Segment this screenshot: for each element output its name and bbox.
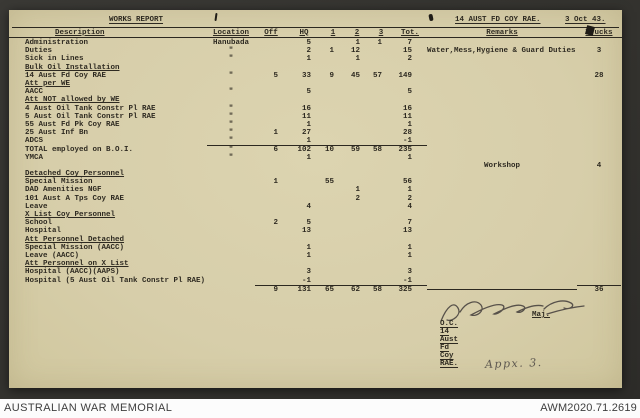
column-header-2: 2 bbox=[345, 29, 369, 37]
cell-desc: Leave bbox=[25, 203, 207, 211]
cell-desc: AACC bbox=[25, 88, 207, 96]
cell-tot: 2 bbox=[393, 55, 427, 63]
cell-tot: 1 bbox=[393, 121, 427, 129]
table-row: Hospital (5 Aust Oil Tank Constr Pl RAE)… bbox=[9, 276, 622, 284]
cell-c3: 1 bbox=[369, 39, 393, 47]
cell-tot: 4 bbox=[393, 203, 427, 211]
column-header-3: 3 bbox=[369, 29, 393, 37]
cell-loc: " bbox=[207, 129, 255, 137]
document-page: WORKS REPORT 14 AUST FD COY RAE. 3 Oct 4… bbox=[9, 10, 622, 388]
cell-c1: 9 bbox=[321, 72, 345, 80]
table-row: Att Personnel Detached bbox=[9, 236, 622, 244]
table-row: YMCA"11 bbox=[9, 154, 622, 162]
cell-rem: Water,Mess,Hygiene & Guard Duties bbox=[427, 47, 577, 55]
column-header-tot: Tot. bbox=[393, 29, 427, 37]
column-header-description: Description bbox=[25, 29, 207, 37]
cell-hq: 131 bbox=[287, 285, 321, 294]
cell-off: 1 bbox=[255, 178, 287, 186]
cell-tot: 1 bbox=[393, 154, 427, 162]
table-row: Special Mission (AACC)11 bbox=[9, 244, 622, 252]
cell-desc: 4 Aust Oil Tank Constr Pl RAE bbox=[25, 105, 207, 113]
cell-tr: 3 bbox=[577, 47, 621, 55]
cell-loc: " bbox=[207, 113, 255, 121]
cell-hq: -1 bbox=[287, 277, 321, 285]
handwritten-signature bbox=[437, 294, 587, 324]
handwritten-appendix-note: Appx. 3. bbox=[485, 359, 543, 369]
cell-tot: 1 bbox=[393, 252, 427, 260]
cell-tot: 15 bbox=[393, 47, 427, 55]
cell-c3: 58 bbox=[369, 145, 393, 154]
column-header-off: Off bbox=[255, 29, 287, 37]
archive-name: AUSTRALIAN WAR MEMORIAL bbox=[4, 402, 172, 414]
cell-loc: " bbox=[207, 88, 255, 96]
cell-desc: YMCA bbox=[25, 154, 207, 162]
cell-tot: 325 bbox=[393, 285, 427, 294]
signature-role: O.C. 14 Aust Fd Coy RAE. bbox=[440, 320, 458, 368]
table-row: 14 Aust Fd Coy RAE"5339455714928 bbox=[9, 72, 622, 80]
column-header-remarks: Remarks bbox=[427, 29, 577, 37]
cell-off: 6 bbox=[255, 145, 287, 154]
cell-c2: 12 bbox=[345, 47, 369, 55]
table-row: Att per WE bbox=[9, 80, 622, 88]
report-title-row: WORKS REPORT 14 AUST FD COY RAE. 3 Oct 4… bbox=[9, 16, 622, 26]
cell-hq: 1 bbox=[287, 154, 321, 162]
report-unit: 14 AUST FD COY RAE. bbox=[455, 16, 541, 24]
table-row: 25 Aust Inf Bn"12728 bbox=[9, 129, 622, 137]
cell-rem bbox=[427, 289, 577, 290]
table-row: 4 Aust Oil Tank Constr Pl RAE"1616 bbox=[9, 105, 622, 113]
cell-loc: " bbox=[207, 72, 255, 80]
cell-tot: 149 bbox=[393, 72, 427, 80]
cell-hq: 3 bbox=[287, 268, 321, 276]
cell-hq: 13 bbox=[287, 227, 321, 235]
cell-c1: 10 bbox=[321, 145, 345, 154]
table-row: Att NOT allowed by WE bbox=[9, 96, 622, 104]
cell-loc: " bbox=[207, 137, 255, 145]
cell-c2: 45 bbox=[345, 72, 369, 80]
cell-desc: Leave (AACC) bbox=[25, 252, 207, 260]
cell-desc: X List Coy Personnel bbox=[25, 211, 207, 219]
table-row: Duties"211215Water,Mess,Hygiene & Guard … bbox=[9, 47, 622, 55]
table-row: 913165625832536 bbox=[9, 285, 622, 293]
cell-loc: " bbox=[207, 121, 255, 129]
cell-tot: 13 bbox=[393, 227, 427, 235]
cell-rem: Workshop bbox=[427, 162, 577, 170]
cell-tot: 3 bbox=[393, 268, 427, 276]
cell-c2: 2 bbox=[345, 195, 369, 203]
cell-desc: Att Personnel on X List bbox=[25, 260, 207, 268]
cell-off: 2 bbox=[255, 219, 287, 227]
cell-desc: Att Personnel Detached bbox=[25, 236, 207, 244]
cell-desc: 5 Aust Oil Tank Constr Pl RAE bbox=[25, 113, 207, 121]
cell-hq: 5 bbox=[287, 219, 321, 227]
column-header-1: 1 bbox=[321, 29, 345, 37]
cell-tot: 2 bbox=[393, 195, 427, 203]
cell-tot: 7 bbox=[393, 39, 427, 47]
cell-hq: 16 bbox=[287, 105, 321, 113]
cell-hq: 1 bbox=[287, 252, 321, 260]
table-row: TOTAL employed on B.O.I."6102105958235 bbox=[9, 145, 622, 153]
cell-desc: 25 Aust Inf Bn bbox=[25, 129, 207, 137]
cell-tot: 1 bbox=[393, 186, 427, 194]
table-row: Detached Coy Personnel bbox=[9, 170, 622, 178]
table-row: Hospital1313 bbox=[9, 227, 622, 235]
cell-hq: 5 bbox=[287, 39, 321, 47]
cell-desc: Bulk Oil Installation bbox=[25, 64, 207, 72]
table-row: X List Coy Personnel bbox=[9, 211, 622, 219]
table-row: 5 Aust Oil Tank Constr Pl RAE"1111 bbox=[9, 113, 622, 121]
cell-hq: 11 bbox=[287, 113, 321, 121]
cell-c3: 57 bbox=[369, 72, 393, 80]
table-row: Workshop4 bbox=[9, 162, 622, 170]
cell-tot: 56 bbox=[393, 178, 427, 186]
cell-tot: -1 bbox=[393, 277, 427, 285]
cell-off: 5 bbox=[255, 72, 287, 80]
report-date: 3 Oct 43. bbox=[565, 16, 606, 24]
cell-c2: 1 bbox=[345, 39, 369, 47]
table-row: School257 bbox=[9, 219, 622, 227]
cell-tot: 7 bbox=[393, 219, 427, 227]
cell-loc: " bbox=[207, 105, 255, 113]
cell-hq: 2 bbox=[287, 47, 321, 55]
cell-loc: Hanubada bbox=[207, 39, 255, 47]
report-title: WORKS REPORT bbox=[109, 16, 163, 24]
cell-loc: " bbox=[207, 47, 255, 55]
cell-c3: 58 bbox=[369, 285, 393, 294]
table-row: Sick in Lines"112 bbox=[9, 55, 622, 63]
cell-desc: 14 Aust Fd Coy RAE bbox=[25, 72, 207, 80]
cell-c1: 65 bbox=[321, 285, 345, 294]
cell-c1: 55 bbox=[321, 178, 345, 186]
cell-tr: 36 bbox=[577, 285, 621, 294]
cell-desc: Duties bbox=[25, 47, 207, 55]
cell-tr: 4 bbox=[577, 162, 621, 170]
column-header-trucks: Trucks bbox=[577, 29, 621, 37]
cell-desc: Detached Coy Personnel bbox=[25, 170, 207, 178]
cell-hq: 27 bbox=[287, 129, 321, 137]
table-row: Special Mission15556 bbox=[9, 178, 622, 186]
cell-loc: " bbox=[207, 154, 255, 162]
table-row: 55 Aust Fd Pk Coy RAE"11 bbox=[9, 121, 622, 129]
table-header-row: Description Location Off HQ 1 2 3 Tot. R… bbox=[9, 28, 622, 38]
photo-frame: WORKS REPORT 14 AUST FD COY RAE. 3 Oct 4… bbox=[0, 0, 640, 400]
cell-off: 1 bbox=[255, 129, 287, 137]
cell-c2: 59 bbox=[345, 145, 369, 154]
table-row: AdministrationHanubada5117 bbox=[9, 39, 622, 47]
signature-rank: Maj. bbox=[532, 311, 550, 319]
column-header-hq: HQ bbox=[287, 29, 321, 37]
table-row: AACC"55 bbox=[9, 88, 622, 96]
cell-desc: Att NOT allowed by WE bbox=[25, 96, 207, 104]
column-header-location: Location bbox=[207, 29, 255, 37]
table-row: DAD Amenities NGF11 bbox=[9, 186, 622, 194]
cell-hq: 4 bbox=[287, 203, 321, 211]
table-row: Hospital (AACC)(AAPS)33 bbox=[9, 268, 622, 276]
cell-c2: 1 bbox=[345, 186, 369, 194]
cell-hq: 1 bbox=[287, 121, 321, 129]
cell-desc: School bbox=[25, 219, 207, 227]
cell-loc: " bbox=[207, 55, 255, 63]
cell-off: 9 bbox=[255, 285, 287, 294]
cell-desc: Hospital (AACC)(AAPS) bbox=[25, 268, 207, 276]
cell-desc: Special Mission bbox=[25, 178, 207, 186]
cell-hq: 1 bbox=[287, 55, 321, 63]
cell-tot: 28 bbox=[393, 129, 427, 137]
cell-c1: 1 bbox=[321, 47, 345, 55]
cell-desc: Special Mission (AACC) bbox=[25, 244, 207, 252]
cell-tot: 1 bbox=[393, 244, 427, 252]
cell-hq: 1 bbox=[287, 137, 321, 145]
cell-desc: 101 Aust A Tps Coy RAE bbox=[25, 195, 207, 203]
ink-mark bbox=[428, 14, 433, 22]
table-row: Leave (AACC)11 bbox=[9, 252, 622, 260]
table-row: 101 Aust A Tps Coy RAE22 bbox=[9, 195, 622, 203]
cell-tr: 28 bbox=[577, 72, 621, 80]
cell-desc: DAD Amenities NGF bbox=[25, 186, 207, 194]
cell-desc: Administration bbox=[25, 39, 207, 47]
table-row: Bulk Oil Installation bbox=[9, 64, 622, 72]
cell-tot: 11 bbox=[393, 113, 427, 121]
cell-tot: -1 bbox=[393, 137, 427, 145]
archive-id: AWM2020.71.2619 bbox=[540, 402, 637, 414]
table-row: ADCS"1-1 bbox=[9, 137, 622, 145]
caption-bar: AUSTRALIAN WAR MEMORIAL AWM2020.71.2619 bbox=[0, 399, 640, 418]
cell-c2: 1 bbox=[345, 55, 369, 63]
table-row: Leave44 bbox=[9, 203, 622, 211]
cell-desc: Hospital bbox=[25, 227, 207, 235]
cell-hq: 1 bbox=[287, 244, 321, 252]
cell-desc: Sick in Lines bbox=[25, 55, 207, 63]
table-body: AdministrationHanubada5117Duties"211215W… bbox=[9, 39, 622, 293]
cell-desc: Att per WE bbox=[25, 80, 207, 88]
cell-hq: 5 bbox=[287, 88, 321, 96]
cell-tot: 5 bbox=[393, 88, 427, 96]
cell-c2: 62 bbox=[345, 285, 369, 294]
cell-desc: ADCS bbox=[25, 137, 207, 145]
cell-desc: Hospital (5 Aust Oil Tank Constr Pl RAE) bbox=[25, 277, 207, 285]
table-row: Att Personnel on X List bbox=[9, 260, 622, 268]
cell-desc: 55 Aust Fd Pk Coy RAE bbox=[25, 121, 207, 129]
cell-tot: 16 bbox=[393, 105, 427, 113]
cell-hq: 33 bbox=[287, 72, 321, 80]
